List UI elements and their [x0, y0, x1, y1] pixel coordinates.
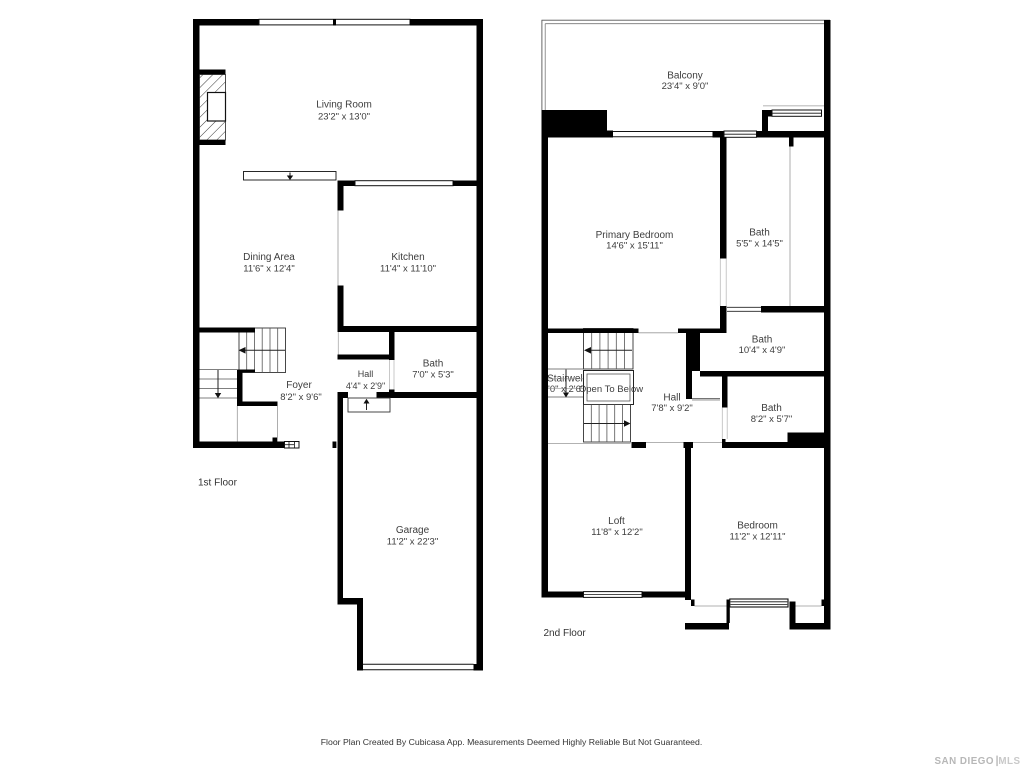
svg-text:11'2" x 12'11": 11'2" x 12'11" — [730, 532, 786, 543]
svg-text:Bedroom: Bedroom — [737, 521, 778, 532]
svg-text:11'8" x 12'2": 11'8" x 12'2" — [591, 527, 642, 538]
svg-text:14'6" x 15'11": 14'6" x 15'11" — [606, 241, 663, 252]
svg-text:11'6" x 12'4": 11'6" x 12'4" — [243, 264, 294, 275]
svg-text:Bath: Bath — [761, 403, 782, 414]
svg-text:Balcony: Balcony — [667, 71, 703, 82]
svg-text:8'2" x 5'7": 8'2" x 5'7" — [751, 414, 793, 425]
svg-text:11'2" x 22'3": 11'2" x 22'3" — [387, 537, 438, 548]
svg-text:2nd Floor: 2nd Floor — [544, 628, 587, 639]
svg-text:23'4" x 9'0": 23'4" x 9'0" — [662, 81, 709, 92]
svg-text:Living Room: Living Room — [316, 100, 372, 111]
svg-text:Primary Bedroom: Primary Bedroom — [596, 230, 674, 241]
svg-text:Open To Below: Open To Below — [579, 384, 643, 395]
svg-text:Garage: Garage — [396, 525, 430, 536]
svg-text:23'2" x 13'0": 23'2" x 13'0" — [318, 112, 370, 123]
svg-text:4'4" x 2'9": 4'4" x 2'9" — [346, 381, 385, 391]
svg-text:Dining Area: Dining Area — [243, 252, 295, 263]
svg-text:8'2" x 9'6": 8'2" x 9'6" — [280, 392, 322, 403]
svg-text:SAN DIEGO: SAN DIEGO — [935, 756, 994, 767]
svg-text:1st Floor: 1st Floor — [198, 478, 238, 489]
svg-text:7'0" x 5'3": 7'0" x 5'3" — [412, 370, 454, 381]
svg-text:Bath: Bath — [752, 335, 773, 346]
svg-text:Loft: Loft — [608, 516, 625, 527]
svg-text:11'4" x 11'10": 11'4" x 11'10" — [380, 264, 436, 275]
svg-text:MLS: MLS — [998, 756, 1020, 767]
svg-text:Bath: Bath — [423, 359, 444, 370]
svg-text:5'5" x 14'5": 5'5" x 14'5" — [736, 239, 783, 250]
svg-text:7'8" x 9'2": 7'8" x 9'2" — [651, 403, 693, 414]
svg-text:Kitchen: Kitchen — [391, 252, 424, 263]
svg-text:Foyer: Foyer — [286, 380, 312, 391]
svg-text:10'4" x 4'9": 10'4" x 4'9" — [739, 345, 786, 356]
svg-text:Bath: Bath — [749, 228, 770, 239]
svg-text:Hall: Hall — [663, 393, 680, 404]
svg-text:Hall: Hall — [358, 369, 374, 379]
svg-text:Floor Plan Created By Cubicasa: Floor Plan Created By Cubicasa App. Meas… — [321, 737, 702, 747]
